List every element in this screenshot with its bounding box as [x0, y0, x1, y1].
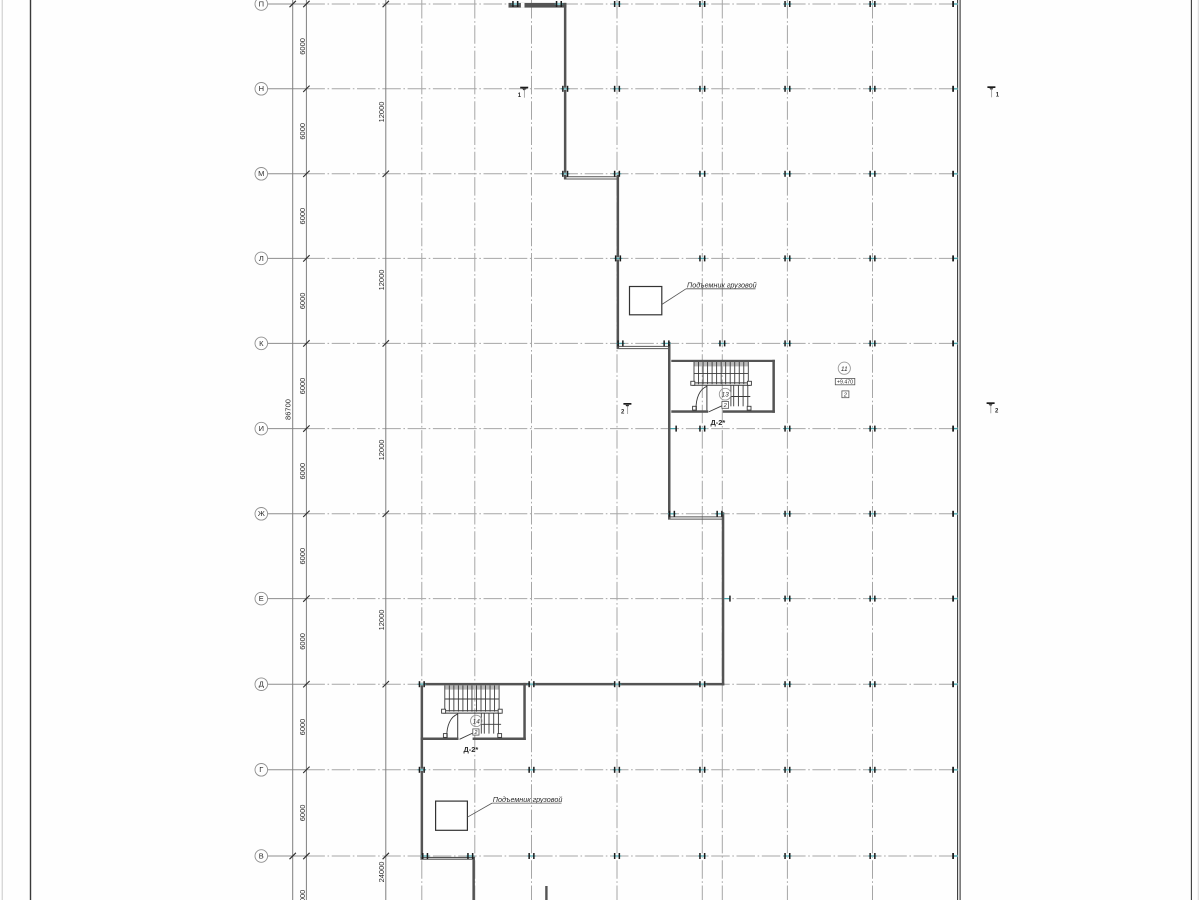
svg-text:6000: 6000	[298, 633, 307, 650]
svg-text:Подъемник грузовой: Подъемник грузовой	[687, 281, 757, 290]
svg-text:Ж: Ж	[258, 509, 265, 518]
svg-text:12000: 12000	[377, 270, 386, 291]
svg-text:6000: 6000	[298, 378, 307, 395]
svg-text:14: 14	[473, 718, 481, 725]
svg-text:11: 11	[841, 366, 848, 373]
svg-text:12000: 12000	[377, 102, 386, 123]
svg-text:К: К	[259, 339, 264, 348]
svg-text:Л: Л	[259, 254, 264, 263]
svg-text:Д-2*: Д-2*	[464, 745, 479, 754]
svg-text:6000: 6000	[298, 805, 307, 822]
svg-text:И: И	[259, 424, 264, 433]
svg-text:6000: 6000	[298, 123, 307, 140]
svg-text:6000: 6000	[298, 208, 307, 225]
svg-text:Д-2*: Д-2*	[711, 418, 726, 427]
svg-text:13: 13	[722, 392, 730, 399]
svg-text:6000: 6000	[298, 548, 307, 565]
svg-text:2: 2	[843, 392, 847, 398]
svg-text:Д: Д	[259, 680, 264, 689]
svg-text:П: П	[259, 0, 264, 8]
svg-text:6000: 6000	[298, 293, 307, 310]
svg-text:+9.470: +9.470	[837, 380, 853, 386]
svg-text:12000: 12000	[377, 440, 386, 461]
svg-text:Е: Е	[259, 594, 264, 603]
svg-text:6000: 6000	[298, 719, 307, 736]
svg-text:Подъемник грузовой: Подъемник грузовой	[493, 795, 563, 804]
svg-text:2: 2	[723, 403, 727, 409]
svg-text:6000: 6000	[298, 463, 307, 480]
svg-text:М: М	[258, 169, 264, 178]
svg-text:Н: Н	[259, 84, 264, 93]
svg-text:24000: 24000	[377, 862, 386, 883]
svg-text:86700: 86700	[284, 399, 293, 420]
svg-text:Г: Г	[259, 765, 263, 774]
svg-text:6000: 6000	[298, 38, 307, 55]
svg-text:6000: 6000	[298, 890, 307, 900]
svg-text:12000: 12000	[377, 610, 386, 631]
svg-text:2: 2	[473, 730, 477, 736]
svg-text:В: В	[259, 851, 264, 860]
